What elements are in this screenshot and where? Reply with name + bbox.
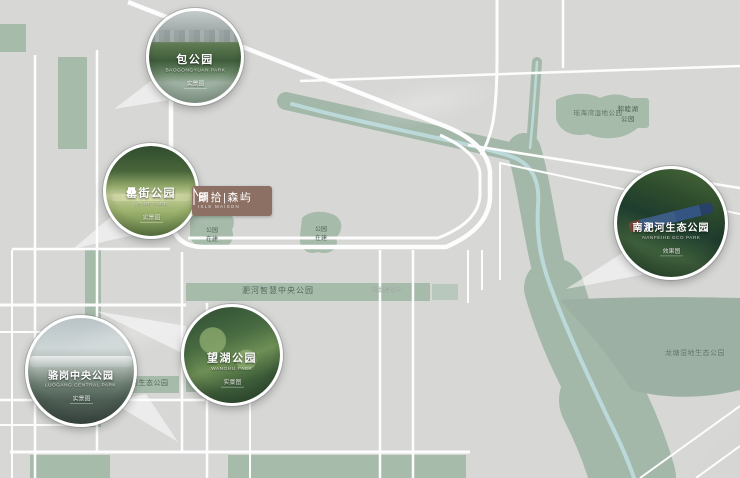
callout-leijie-park: 罍街公园 LEIJIE PARK 实景图 [103, 143, 199, 239]
project-logo-card: 朗拾|森屿 ISLE MAISON [192, 186, 272, 216]
label-park-under-construction-right: 公园 在建 [301, 217, 341, 249]
park-patch [0, 24, 26, 52]
leijie-park-tag: 实景图 [140, 213, 163, 222]
wanghu-park-caption: 望湖公园 WANGHU PARK 实景图 [184, 320, 280, 406]
park-band-end [432, 284, 458, 300]
luogang-park-subtitle: LUOGANG CENTRAL PARK [45, 383, 116, 388]
callout-luogang-park: 骆岗中央公园 LUOGANG CENTRAL PARK 实景图 [25, 315, 137, 427]
park-blob-text: 在建 [315, 233, 327, 242]
callout-wanghu-park: 望湖公园 WANGHU PARK 实景图 [181, 304, 283, 406]
bao-park-tag: 实景图 [184, 79, 207, 88]
park-blob-text: 公园 [315, 224, 327, 233]
map-corner [686, 418, 740, 478]
project-logo-mark [192, 186, 207, 206]
label-feihe-smart-note: 规划建设中 [352, 288, 422, 296]
park-blob-text: 公园 [206, 225, 218, 234]
park-patch [58, 57, 87, 149]
wanghu-park-subtitle: WANGHU PARK [211, 367, 252, 372]
leijie-park-caption: 罍街公园 LEIJIE PARK 实景图 [106, 159, 196, 239]
bao-park-subtitle: BAOGONGYUAN PARK [165, 68, 225, 73]
wanghu-park-title: 望湖公园 [207, 349, 257, 365]
nanfeihe-park-caption: 南淝河生态公园 NANFEIHE ECO PARK 效果图 [617, 184, 725, 280]
luogang-park-title: 骆岗中央公园 [48, 367, 114, 382]
label-feihe-smart-central-park: 淝河智慧中央公园 [210, 286, 346, 296]
park-band-bottom [228, 455, 466, 478]
leijie-park-title: 罍街公园 [126, 184, 176, 200]
label-hemuhu-line2: 公园 [621, 113, 635, 123]
park-band-bottom-left [30, 455, 110, 478]
leijie-park-subtitle: LEIJIE PARK [134, 202, 167, 207]
project-name-en: ISLE MAISON [198, 205, 240, 210]
callout-nanfeihe-park: 南淝河生态公园 NANFEIHE ECO PARK 效果图 [614, 166, 728, 280]
callout-bao-park: 包公园 BAOGONGYUAN PARK 实景图 [146, 8, 244, 106]
nanfeihe-park-tag: 效果图 [660, 247, 683, 256]
bao-park-caption: 包公园 BAOGONGYUAN PARK 实景图 [149, 24, 241, 106]
label-longtang-wetland-park: 龙塘湿地生态公园 [648, 350, 740, 359]
label-park-under-construction-left: 公园 在建 [192, 219, 232, 249]
location-map: 淝河智慧中央公园 规划建设中 淝河生态公园 龙塘湿地生态公园 瑶海湾湿地公园 和… [0, 0, 740, 478]
luogang-park-tag: 实景图 [70, 395, 93, 404]
bao-park-title: 包公园 [176, 50, 214, 66]
park-blob-text: 在建 [206, 234, 218, 243]
wanghu-park-tag: 实景图 [221, 378, 244, 387]
label-hemuhu-line1: 和睦湖 [618, 103, 639, 113]
nanfeihe-park-subtitle: NANFEIHE ECO PARK [642, 236, 700, 241]
luogang-park-caption: 骆岗中央公园 LUOGANG CENTRAL PARK 实景图 [28, 333, 134, 427]
label-hemuhu-park: 和睦湖 公园 [607, 98, 649, 128]
nanfeihe-park-title: 南淝河生态公园 [633, 219, 710, 234]
